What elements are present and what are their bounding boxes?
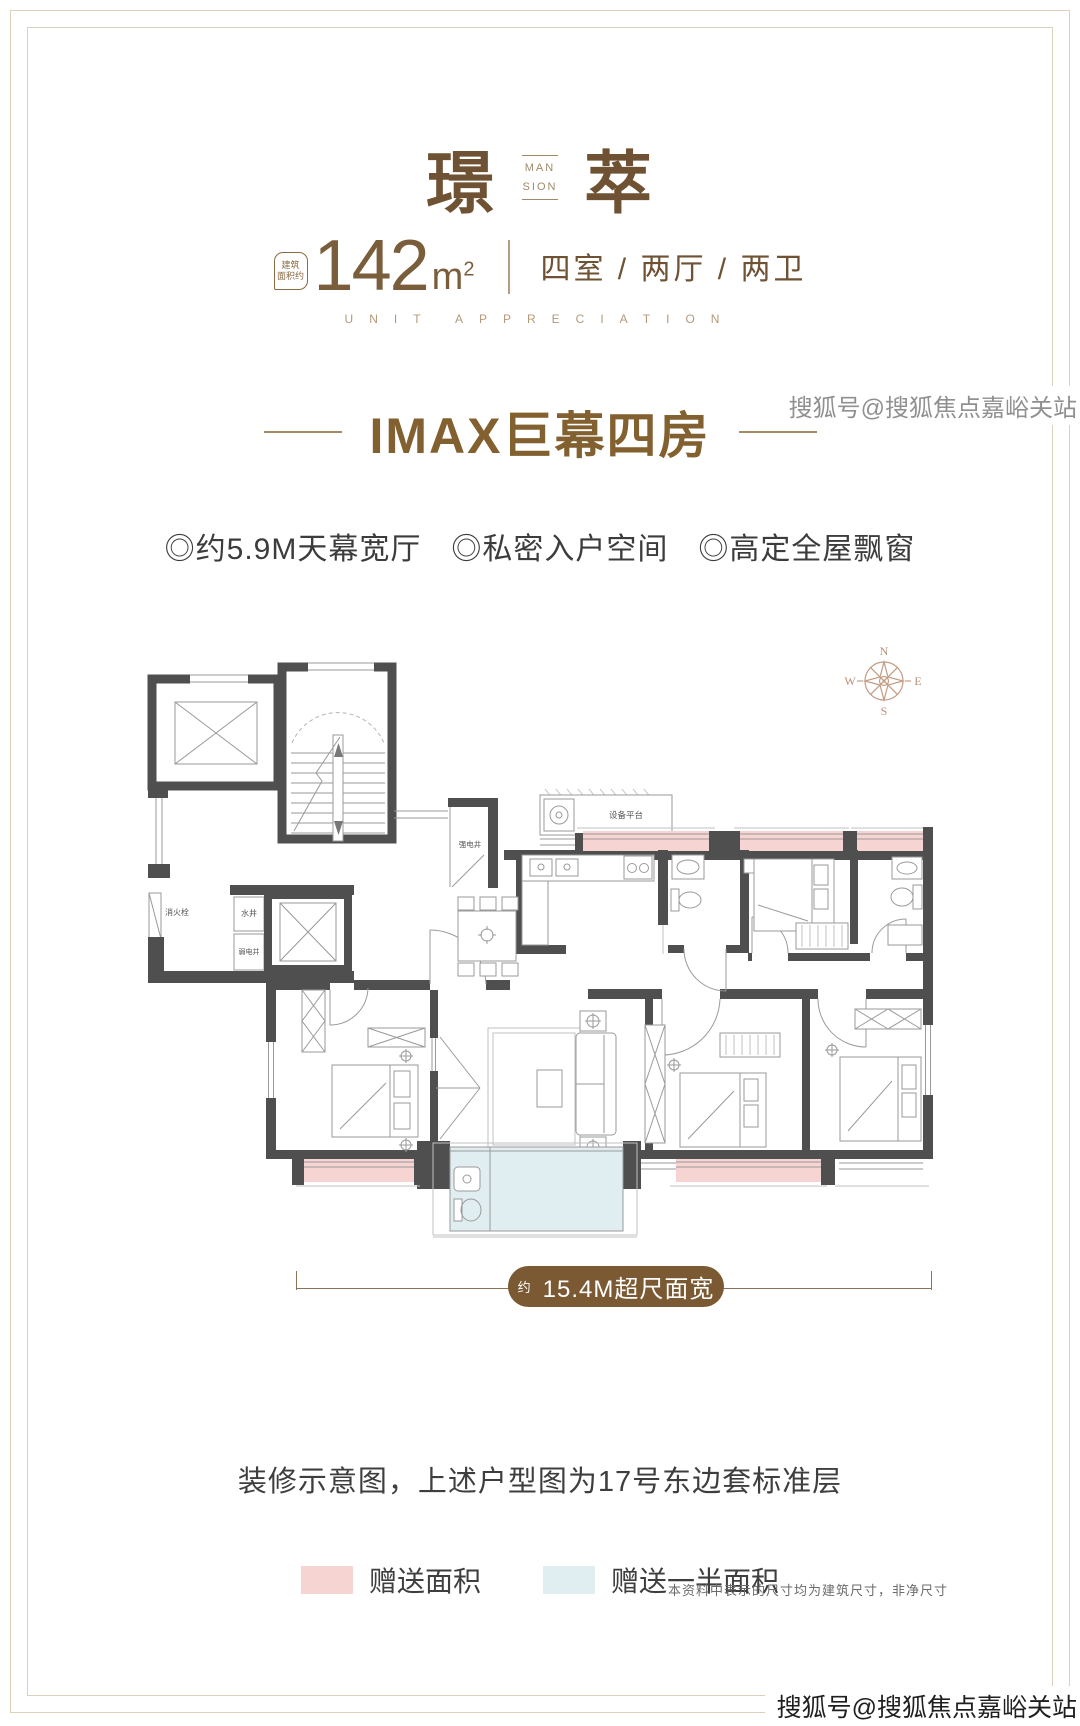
bed [332, 1065, 418, 1137]
mansion-tag: MAN SION [522, 155, 558, 201]
compass-e: E [914, 674, 921, 688]
feature-item: ◎高定全屋飘窗 [698, 524, 915, 568]
dresser [368, 1028, 425, 1047]
bedroom-left-door [330, 988, 368, 1025]
bonus-bay-window-top-1 [577, 828, 715, 851]
dimension-annotation: 约 15.4M超尺面宽 [296, 1264, 932, 1312]
bedroom-top [744, 859, 848, 949]
elevator-1 [175, 702, 257, 764]
strong-current-shaft: 强电井 [448, 798, 498, 888]
area-unit: m2 [432, 258, 475, 296]
balcony [433, 1143, 637, 1237]
watermark-bottom: 搜狐号@搜狐焦点嘉峪关站 [765, 1686, 1080, 1726]
washing-machine [544, 799, 574, 831]
english-caption: UNIT APPRECIATION [0, 312, 1080, 326]
bed [840, 1057, 921, 1141]
area-row: 建筑 面积约 142 m2 四室 / 两厅 / 两卫 [0, 238, 1080, 296]
living-room [436, 1011, 616, 1157]
nightstand-lamp-icon [825, 1043, 839, 1057]
stove [624, 856, 652, 879]
section-title: IMAX巨幕四房 [370, 396, 711, 468]
heading-rule-right [739, 431, 817, 433]
water-shaft-label: 水井 [241, 908, 257, 918]
feature-item: ◎约5.9M天幕宽厅 [165, 524, 422, 568]
bedroom-4 [825, 1009, 921, 1141]
balcony-washbasin [454, 1167, 480, 1191]
compass: N E S W [844, 644, 921, 718]
project-title: 璟 MAN SION 萃 [0, 128, 1080, 227]
bedroom-left [302, 990, 425, 1152]
bathroom1-door [684, 949, 726, 991]
mansion-word-top: MAN [525, 161, 555, 175]
area-number: 142 [314, 238, 428, 296]
area-badge-line1: 建筑 [282, 260, 300, 270]
legend-swatch-half-bonus [543, 1566, 595, 1594]
compass-s: S [881, 704, 888, 718]
bonus-bay-window-bottom-right [670, 1159, 827, 1186]
dimension-approx: 约 [518, 1277, 531, 1296]
nightstand-lamp-icon [399, 1138, 413, 1152]
wardrobe [302, 990, 325, 1052]
weak-current-shaft: 弱电井 [234, 934, 264, 970]
wardrobe [645, 1025, 665, 1143]
hallway-cabinet [720, 1033, 780, 1057]
wardrobe [855, 1009, 921, 1029]
core-block: 消火栓 水井 弱电井 强电井 [148, 659, 498, 990]
equipment-platform-label: 设备平台 [609, 810, 643, 820]
nightstand-lamp-icon [667, 1058, 681, 1072]
feature-list: ◎约5.9M天幕宽厅 ◎私密入户空间 ◎高定全屋飘窗 [0, 524, 1080, 568]
dimension-text: 15.4M超尺面宽 [543, 1269, 715, 1304]
bedroom3-door [662, 999, 720, 1055]
area-divider [508, 240, 510, 294]
nightstand-lamp-icon [399, 1049, 413, 1063]
heading-rule-left [264, 431, 342, 433]
legend-swatch-bonus [301, 1566, 353, 1594]
floor-plan: 消火栓 水井 弱电井 强电井 [128, 585, 944, 1245]
layout-text: 四室 / 两厅 / 两卫 [540, 244, 806, 288]
compass-w: W [844, 674, 856, 688]
area-badge-line2: 面积约 [277, 271, 304, 281]
legend-label-bonus: 赠送面积 [369, 1560, 481, 1600]
bonus-bay-window-top-3 [851, 828, 929, 851]
plan-caption: 装修示意图，上述户型图为17号东边套标准层 [0, 1458, 1080, 1500]
bathroom-1 [671, 855, 704, 911]
elevator-2 [268, 895, 348, 969]
bed [680, 1073, 766, 1147]
area-exponent: 2 [463, 258, 474, 280]
area-badge: 建筑 面积约 [274, 252, 308, 290]
sofa [576, 1011, 616, 1157]
mansion-rule-bottom [522, 199, 558, 200]
bathroom-2 [888, 857, 922, 945]
water-shaft: 水井 [234, 897, 264, 931]
bonus-bay-window-bottom-left [296, 1159, 420, 1186]
title-char-left: 璟 [426, 128, 496, 227]
fire-hydrant-label: 消火栓 [165, 907, 189, 917]
kitchen [522, 855, 654, 945]
dining-set [458, 897, 518, 976]
strong-current-shaft-label: 强电井 [459, 839, 482, 849]
disclaimer-note: 本资料中表示的尺寸均为建筑尺寸，非净尺寸 [668, 1580, 948, 1599]
dimension-pill: 约 15.4M超尺面宽 [508, 1266, 724, 1307]
watermark-top: 搜狐号@搜狐焦点嘉峪关站 [777, 386, 1080, 425]
feature-item: ◎私密入户空间 [451, 524, 668, 568]
fire-hydrant: 消火栓 [149, 893, 189, 939]
wardrobe-top-bedroom [796, 923, 848, 949]
compass-n: N [880, 644, 889, 658]
title-char-right: 萃 [584, 128, 654, 227]
mansion-rule-top [522, 155, 558, 156]
weak-current-shaft-label: 弱电井 [239, 947, 260, 956]
mansion-word-bottom: SION [523, 180, 558, 194]
bonus-bay-window-top-2 [734, 828, 849, 851]
